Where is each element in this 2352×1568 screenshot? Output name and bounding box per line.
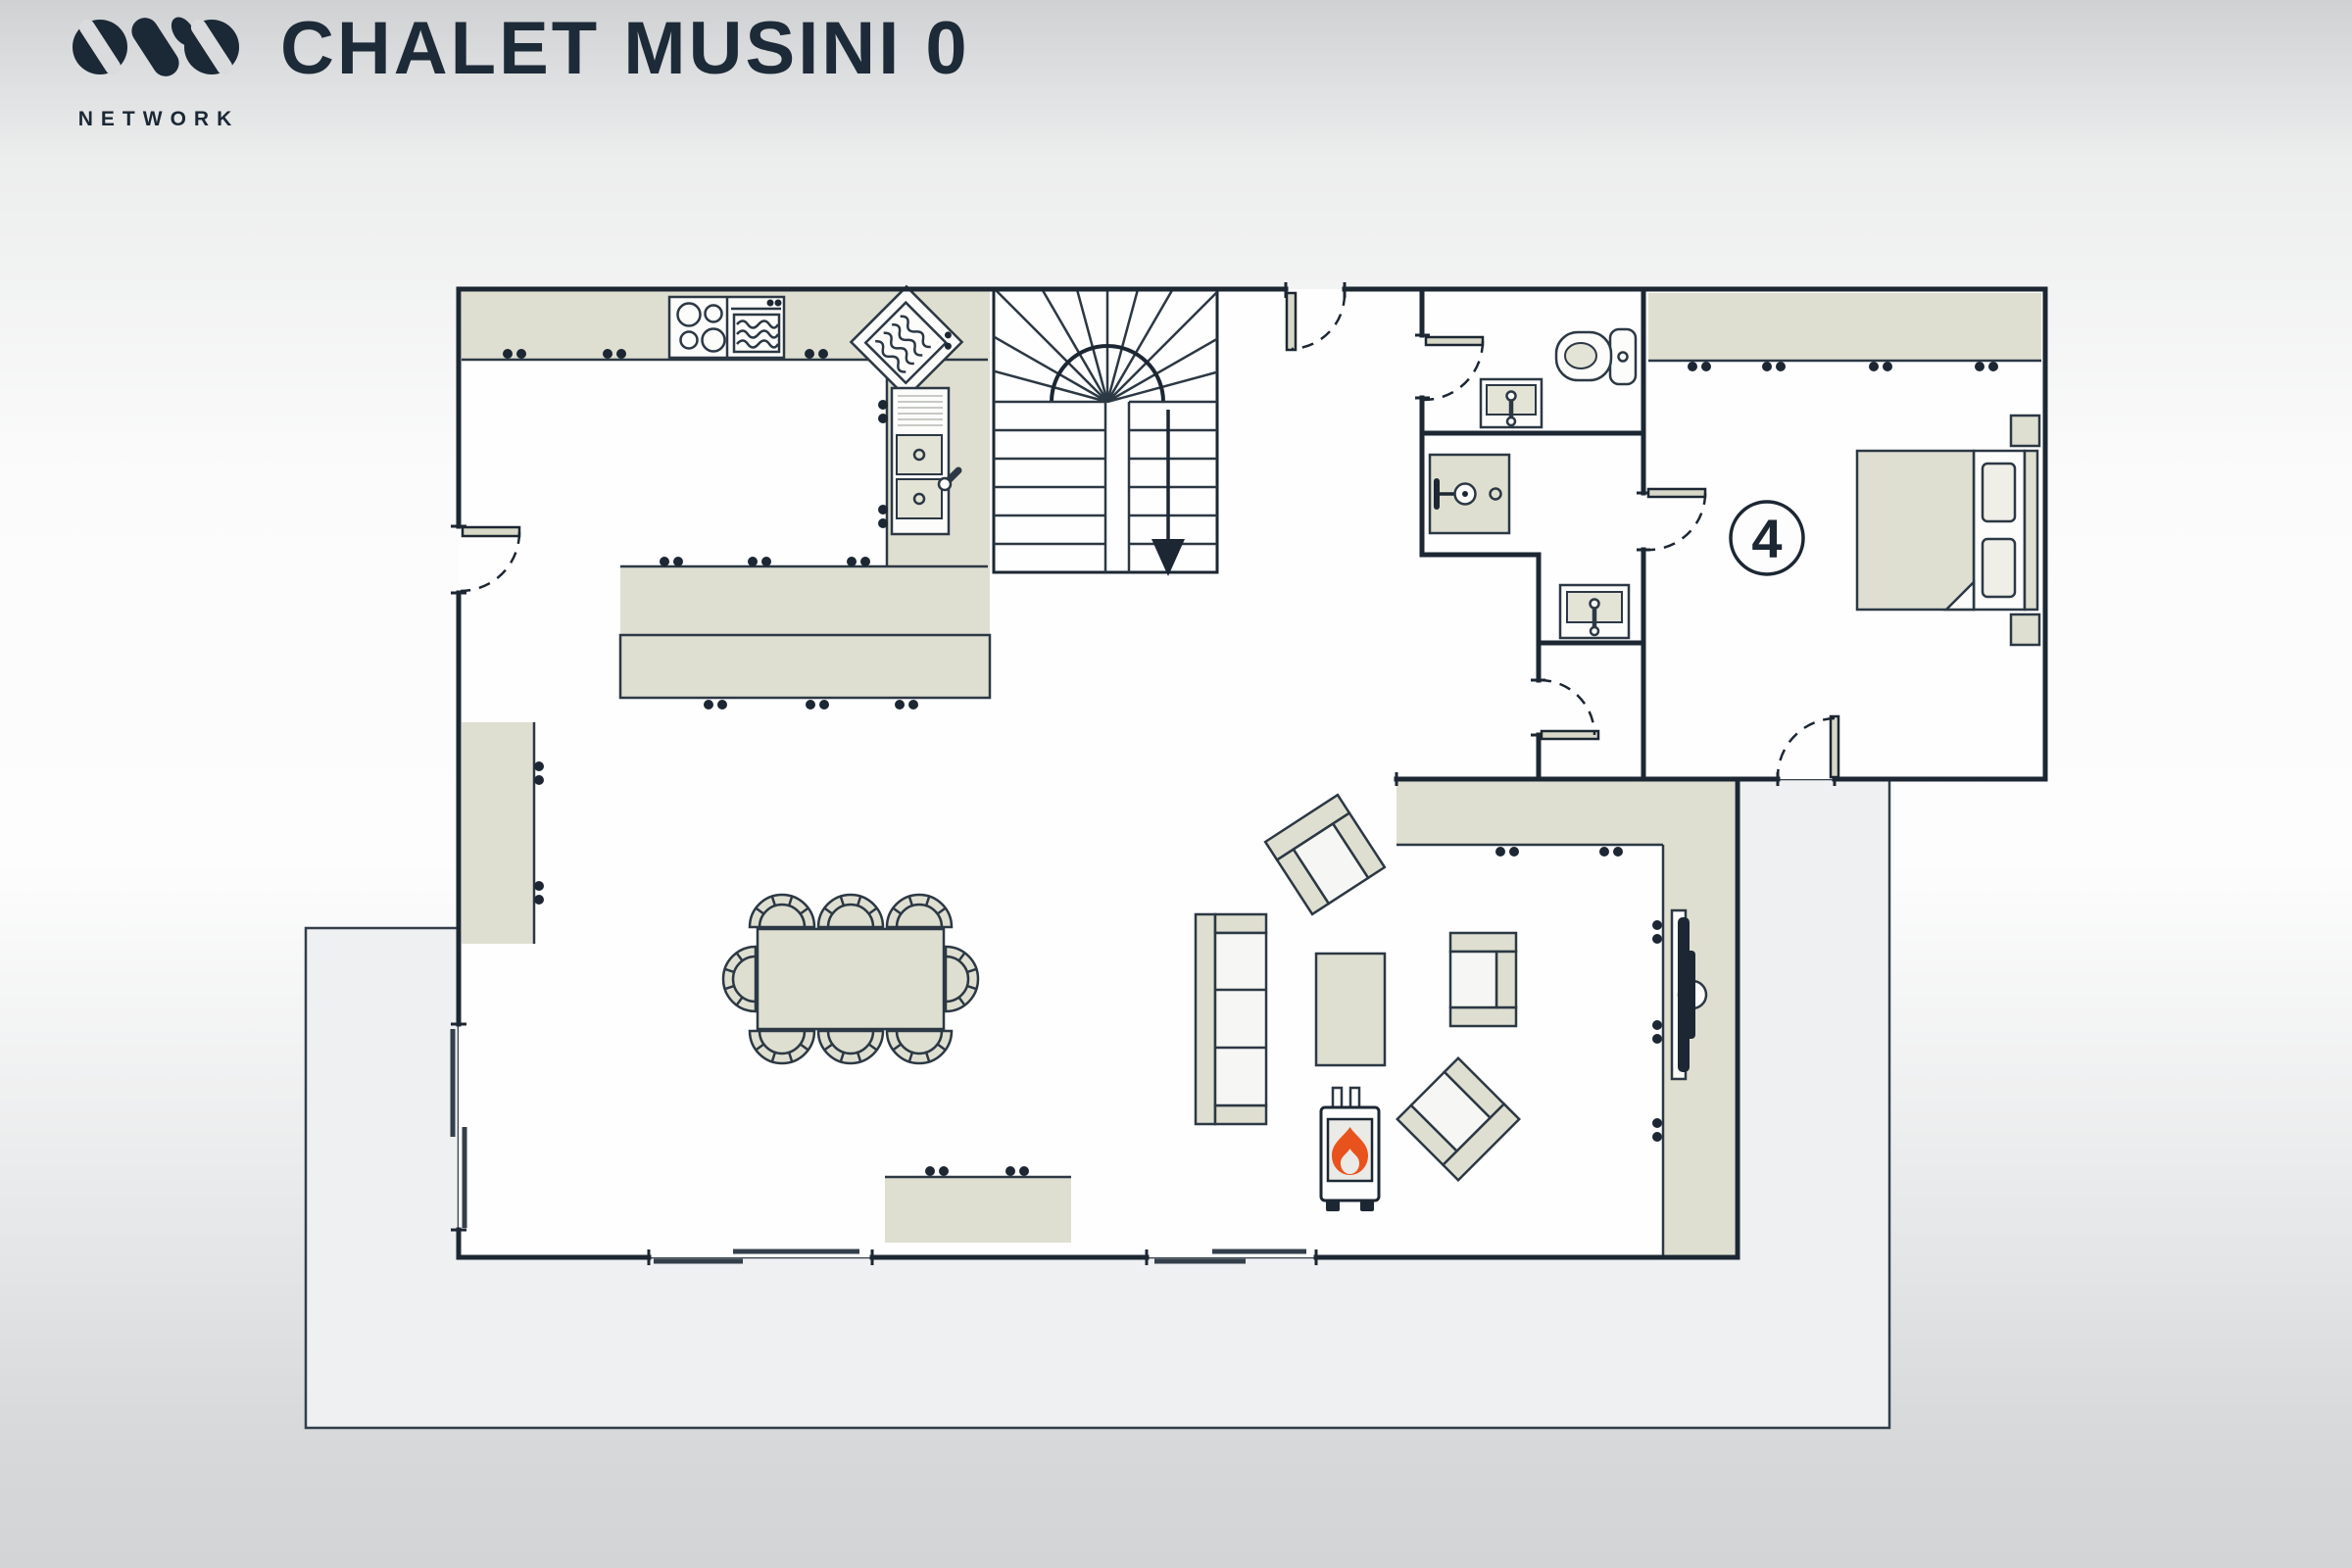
pillow [1983,464,2015,521]
double-bed [1857,451,2037,610]
fireplace-icon [1321,1088,1379,1211]
sideboard [885,1178,1071,1243]
coffee-table [1316,954,1385,1065]
floor-plan: 4 [0,0,2352,1568]
dining-table [758,929,944,1029]
bathroom-sink-icon [1560,585,1629,638]
media-console-top [1396,781,1735,845]
wc-sink-icon [1481,379,1542,427]
armchair [1450,933,1516,1026]
room-number: 4 [1751,508,1782,569]
nightstand [2011,614,2039,645]
tall-cupboard [462,722,534,944]
page: OVO NETWORK CHALET MUSINI 0 [0,0,2352,1568]
wardrobe [1648,293,2041,361]
toilet-icon [1556,329,1636,384]
kitchen-counter-bottom [620,566,990,635]
stove-icon [669,297,784,358]
headboard [2025,451,2037,610]
room-number-badge: 4 [1731,502,1803,574]
kitchen-island [620,635,990,698]
pillow [1983,539,2015,597]
shower-icon [1430,455,1509,533]
kitchen-sink-icon [892,388,958,534]
sofa [1196,914,1266,1124]
nightstand [2011,416,2039,446]
